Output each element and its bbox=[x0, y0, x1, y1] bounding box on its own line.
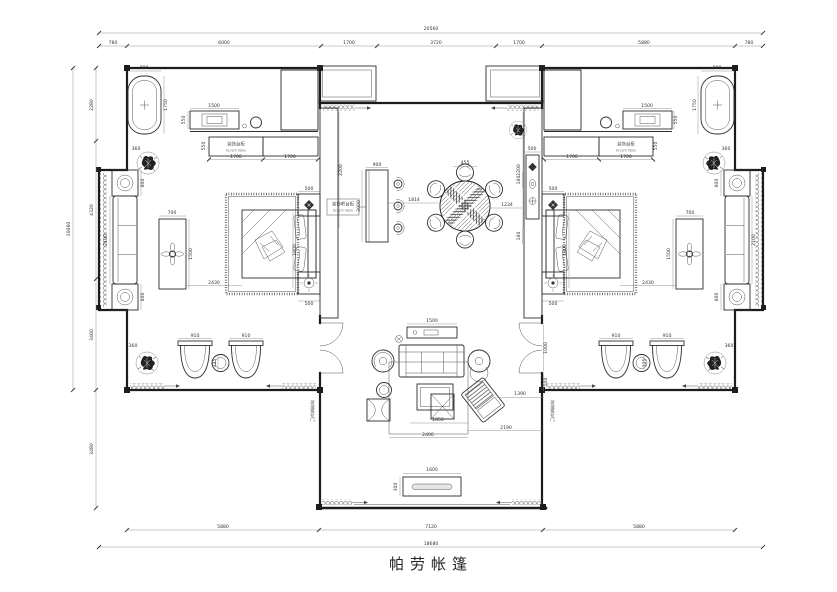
dim-label: 2190 bbox=[500, 425, 512, 431]
dim-label: 500 bbox=[549, 186, 558, 192]
dim-label: 2200 bbox=[338, 164, 344, 176]
floor-plan-svg: 2056078060001700372017005880780588071205… bbox=[0, 0, 837, 592]
center-section bbox=[316, 66, 546, 510]
dim-label: 5880 bbox=[633, 524, 645, 530]
side-table bbox=[367, 399, 390, 421]
dim-label: 1700 bbox=[620, 154, 632, 160]
dim-label: 1500 bbox=[666, 248, 672, 260]
dim-label: 1750 bbox=[692, 99, 698, 111]
dim-label: 1390 bbox=[514, 391, 526, 397]
dim-label: 910 bbox=[242, 333, 251, 339]
bottom-curtains bbox=[322, 500, 542, 506]
dim-label: 550 bbox=[673, 116, 679, 125]
dim-label: 600 bbox=[714, 179, 720, 188]
dim-label: 160 bbox=[516, 176, 522, 185]
dim-label: 2400 bbox=[422, 432, 434, 438]
dim-label: 780 bbox=[745, 40, 754, 46]
dim-label: 18680 bbox=[424, 541, 439, 547]
entry-porch-left bbox=[318, 66, 376, 101]
dim-label: 1700 bbox=[566, 154, 578, 160]
dim-label: 500 bbox=[543, 378, 549, 387]
dim-label: 1000 bbox=[543, 342, 549, 354]
accent-table-label-right-zh: 装饰台柜 bbox=[617, 141, 635, 148]
dining-table bbox=[440, 181, 490, 231]
dim-label: 360 bbox=[132, 146, 141, 152]
dim-label: 1700 bbox=[230, 154, 242, 160]
dim-label: 6000 bbox=[218, 40, 230, 46]
lounge-chair bbox=[461, 377, 505, 423]
dim-label: 780 bbox=[109, 40, 118, 46]
bar-cabinet-label-en: Accent Table bbox=[333, 209, 353, 213]
dining-set bbox=[424, 164, 505, 248]
accent-table-label-right-en: Accent Table bbox=[616, 149, 636, 153]
dim-labels: 2056078060001700372017005880780588071205… bbox=[66, 26, 757, 547]
dim-label: 10060 bbox=[66, 222, 72, 237]
dim-label: 1050 bbox=[432, 417, 444, 423]
dim-label: 2100 bbox=[751, 234, 757, 246]
dim-label: 3460 bbox=[89, 329, 95, 341]
drawing-title: 帕劳帐篷 bbox=[389, 555, 473, 573]
dim-label: 550 bbox=[201, 142, 207, 151]
dim-label: 1500 bbox=[208, 103, 220, 109]
dim-label: 500 bbox=[528, 146, 537, 152]
dim-label: 1700 bbox=[343, 40, 355, 46]
dim-label: 4320 bbox=[89, 204, 95, 216]
dim-label: 1600 bbox=[426, 467, 438, 473]
dim-label: 1750 bbox=[163, 99, 169, 111]
dim-label: 800 bbox=[140, 65, 149, 71]
dim-label: 700 bbox=[686, 210, 695, 216]
tv-console bbox=[403, 477, 461, 496]
dim-label: 2430 bbox=[642, 280, 654, 286]
dim-label: 1500 bbox=[641, 103, 653, 109]
round-armchair bbox=[372, 350, 394, 372]
dim-label: 3480 bbox=[89, 443, 95, 455]
dim-label: 910 bbox=[663, 333, 672, 339]
dim-label: 2280 bbox=[89, 99, 95, 111]
dim-label: 1500 bbox=[188, 248, 194, 260]
dim-label: 360 bbox=[725, 343, 734, 349]
dim-label: 1814 bbox=[408, 197, 420, 203]
dim-label: 910 bbox=[191, 333, 200, 339]
dim-label: 455 bbox=[461, 160, 470, 166]
glass-door-label-left: 玻璃推拉门 bbox=[310, 399, 315, 424]
dim-label: 5880 bbox=[217, 524, 229, 530]
dim-label: 2200 bbox=[516, 164, 522, 176]
glass-door-label-right: 玻璃推拉门 bbox=[550, 399, 555, 424]
floor-plan-page: 2056078060001700372017005880780588071205… bbox=[0, 0, 837, 592]
dim-label: 1800 bbox=[292, 244, 298, 256]
dim-label: 600 bbox=[140, 293, 146, 302]
bar-cabinet-label-zh: 装饰吧台柜 bbox=[332, 201, 355, 208]
dim-label: 2430 bbox=[208, 280, 220, 286]
dim-label: 160 bbox=[516, 232, 522, 241]
dim-label: 600 bbox=[714, 293, 720, 302]
dim-label: 500 bbox=[305, 186, 314, 192]
dim-label: 325 bbox=[642, 359, 648, 368]
decor-console bbox=[526, 155, 539, 219]
dim-label: 900 bbox=[373, 162, 382, 168]
accent-table-label-left-en: Accent Table bbox=[226, 149, 246, 153]
dim-label: 1800 bbox=[562, 244, 568, 256]
dim-label: 550 bbox=[653, 142, 659, 151]
dim-label: 700 bbox=[168, 210, 177, 216]
dim-label: 1700 bbox=[513, 40, 525, 46]
entry-porch-right bbox=[486, 66, 544, 101]
dim-label: 3720 bbox=[430, 40, 442, 46]
top-curtains bbox=[323, 106, 539, 112]
dim-label: 300 bbox=[393, 483, 399, 492]
dim-label: 360 bbox=[129, 343, 138, 349]
dim-label: 2100 bbox=[103, 234, 109, 246]
dim-label: 1700 bbox=[284, 154, 296, 160]
dim-label: 500 bbox=[549, 301, 558, 307]
coffee-table bbox=[417, 384, 454, 419]
dim-label: 1500 bbox=[426, 318, 438, 324]
dim-label: 550 bbox=[181, 116, 187, 125]
round-armchair bbox=[468, 350, 490, 382]
dim-label: 3000 bbox=[356, 200, 362, 212]
sofa bbox=[399, 345, 464, 377]
accent-table-label-left-zh: 装饰台柜 bbox=[227, 141, 245, 148]
dim-label: 600 bbox=[140, 179, 146, 188]
dim-label: 5880 bbox=[638, 40, 650, 46]
lattice-screen-left bbox=[320, 108, 338, 318]
dim-label: 20560 bbox=[424, 26, 439, 32]
dim-label: 500 bbox=[305, 301, 314, 307]
dim-label: 800 bbox=[713, 65, 722, 71]
dim-label: 325 bbox=[212, 359, 218, 368]
dim-label: 910 bbox=[612, 333, 621, 339]
dim-label: 7120 bbox=[425, 524, 437, 530]
dim-label: 1234 bbox=[501, 202, 513, 208]
dim-label: 360 bbox=[722, 146, 731, 152]
